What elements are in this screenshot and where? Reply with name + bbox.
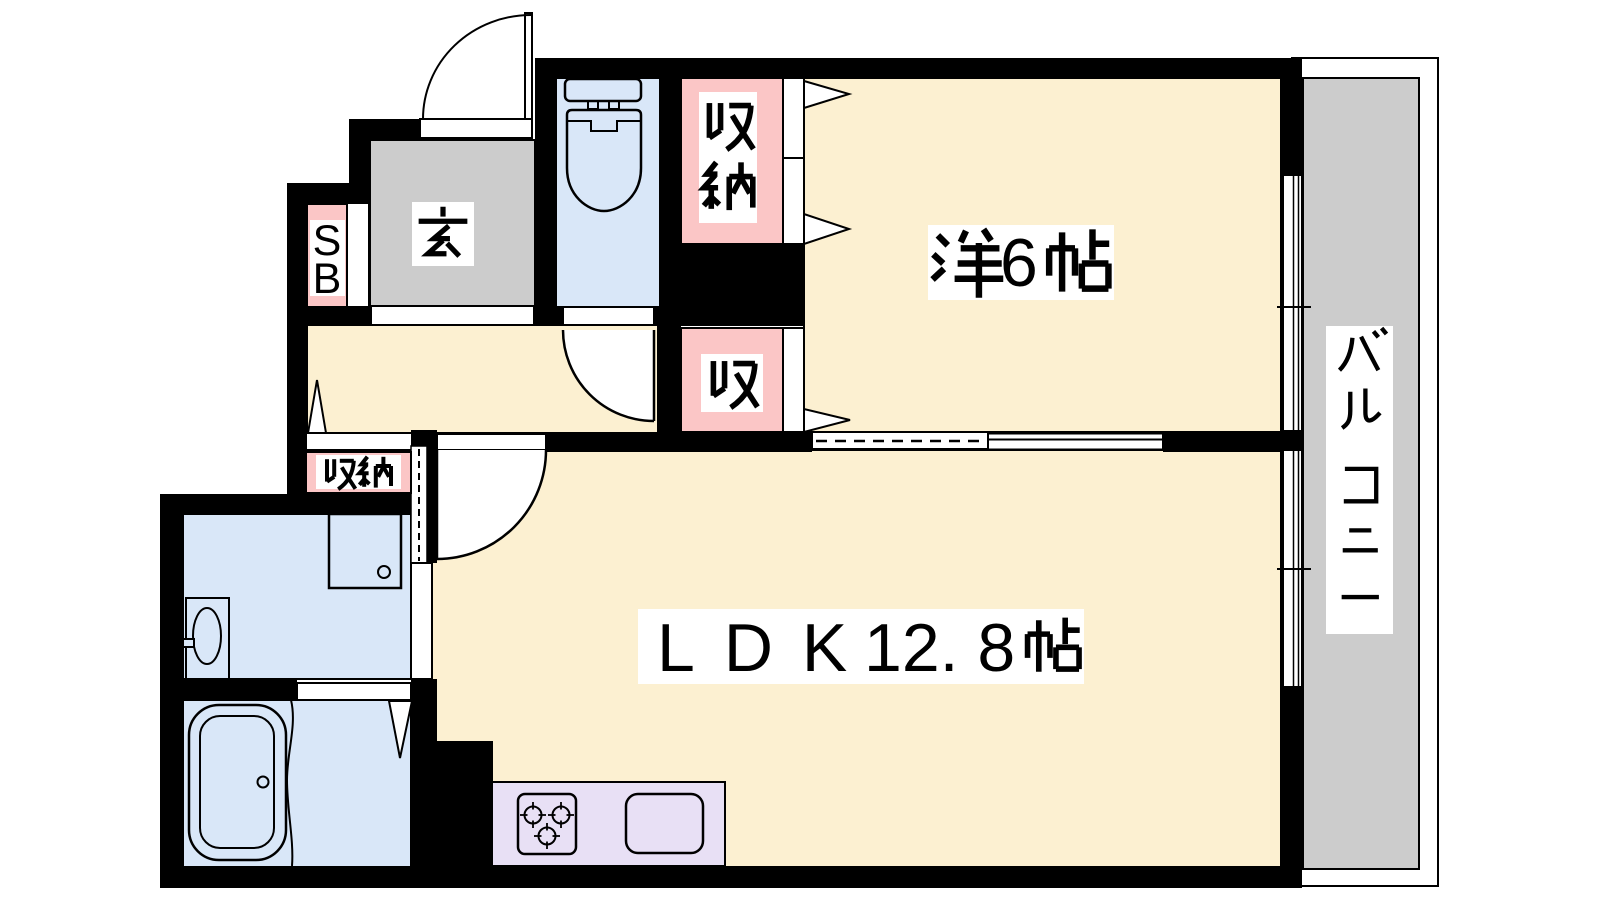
- svg-text:B: B: [313, 255, 342, 303]
- svg-text:6: 6: [1000, 225, 1038, 301]
- svg-text:LDK: LDK: [657, 610, 876, 686]
- svg-text:12. 8: 12. 8: [864, 610, 1015, 686]
